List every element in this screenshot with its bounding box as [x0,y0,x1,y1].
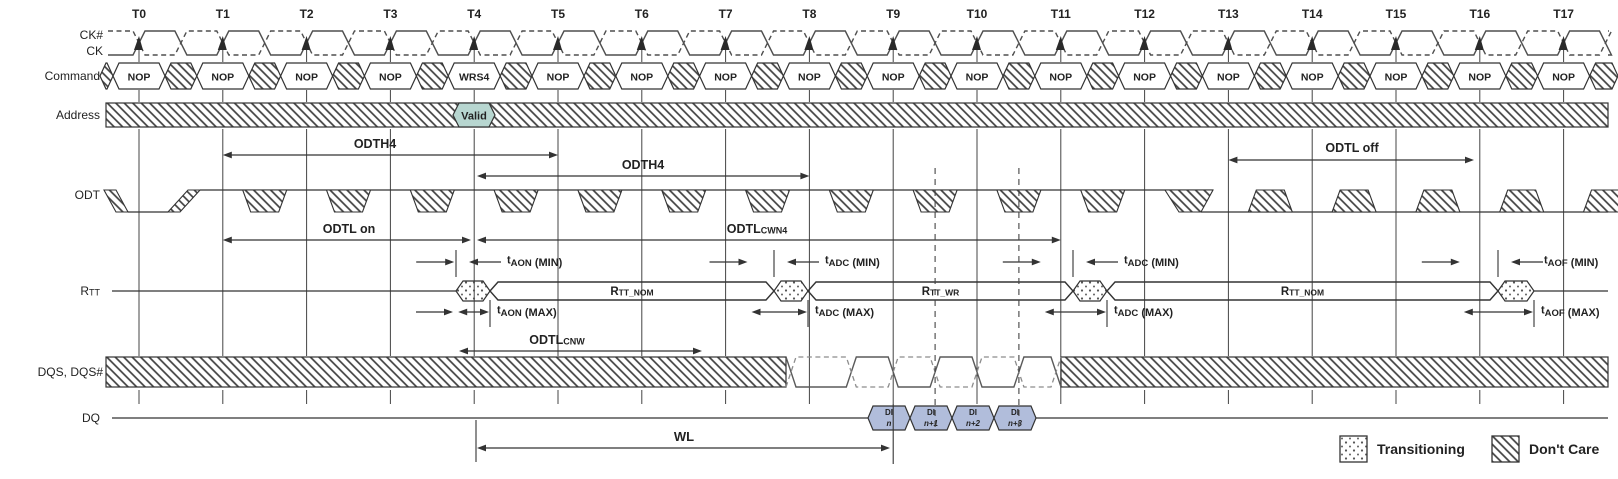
command-cell-label: NOP [882,72,905,84]
rtt-state-label: RTT_NOM [610,286,653,298]
tick-label: T4 [467,7,481,21]
rtt-transitioning-cell [456,281,490,301]
odtl-on-label: ODTL on [323,222,376,236]
dq-data-label: DI [885,408,893,417]
command-cell-label: NOP [1468,72,1491,84]
tick-label: T6 [635,7,649,21]
tick-label: T5 [551,7,565,21]
row-label-ck: CK [86,44,103,58]
dq-data-label: DI [927,408,935,417]
command-cell-label: NOP [1133,72,1156,84]
tick-label: T1 [216,7,230,21]
tick-label: T10 [967,7,988,21]
dq-data-label: n+3 [1008,419,1023,428]
command-cell-label: NOP [128,72,151,84]
command-dontcare-cell [1171,63,1203,89]
rtt-transitioning-cell [1073,281,1107,301]
tick-label: T7 [719,7,733,21]
dqs-dontcare-band [106,357,786,387]
command-cell-label: NOP [1552,72,1575,84]
timing-diagram-figure: T0T1T2T3T4T5T6T7T8T9T10T11T12T13T14T15T1… [0,0,1618,479]
odt-dontcare-piece [1248,190,1292,212]
tick-label: T9 [886,7,900,21]
dqs-dontcare-band [1061,357,1608,387]
tick-label: T17 [1553,7,1574,21]
odt-dontcare-piece [327,190,371,212]
odth4-label: ODTH4 [622,158,664,172]
timing-svg: T0T1T2T3T4T5T6T7T8T9T10T11T12T13T14T15T1… [0,0,1618,479]
command-cell-label: WRS4 [459,72,489,84]
dq-data-label: DI [969,408,977,417]
rtt-transitioning-cell [774,281,808,301]
command-dontcare-cell [249,63,281,89]
legend-transitioning-label: Transitioning [1377,441,1465,457]
odt-dontcare-piece [1081,190,1125,212]
command-cell-label: NOP [295,72,318,84]
odtl-off-label: ODTL off [1325,141,1379,155]
odt-dontcare-piece [746,190,790,212]
address-dontcare-band [106,103,1608,127]
row-label-dqs: DQS, DQS# [38,365,104,379]
row-label-dq: DQ [82,411,100,425]
tick-label: T11 [1051,7,1071,21]
command-cell-label: NOP [966,72,989,84]
legend-transitioning-swatch [1340,436,1367,462]
command-cell-label: NOP [714,72,737,84]
dq-data-label: DI [1011,408,1019,417]
odt-dontcare-piece [1416,190,1460,212]
wl-label: WL [674,429,694,444]
tick-label: T0 [132,7,146,21]
dq-data-label: n+1 [924,419,939,428]
odt-dontcare-piece [1332,190,1376,212]
odt-dontcare-piece [1500,190,1544,212]
row-label-command: Command [45,69,100,83]
command-dontcare-cell [668,63,700,89]
tick-label: T3 [383,7,397,21]
command-dontcare-cell [500,63,532,89]
rtt-transitioning-cell [1498,281,1534,301]
command-cell-label: NOP [630,72,653,84]
row-label-odt: ODT [75,188,101,202]
command-cell-label: NOP [798,72,821,84]
command-dontcare-cell [584,63,616,89]
row-label-ck-n: CK# [80,28,104,42]
tick-label: T13 [1218,7,1239,21]
rtt-state-label: RTT_WR [922,286,960,298]
command-cell-label: NOP [1049,72,1072,84]
command-dontcare-cell [835,63,867,89]
command-cell-label: NOP [547,72,570,84]
command-dontcare-cell [919,63,951,89]
command-dontcare-cell [1254,63,1286,89]
address-valid-label: Valid [461,111,487,123]
command-dontcare-cell [1087,63,1119,89]
command-dontcare-cell [1338,63,1370,89]
odt-dontcare-piece [829,190,873,212]
odt-dontcare-piece [494,190,538,212]
command-dontcare-cell [1422,63,1454,89]
command-dontcare-cell [416,63,448,89]
odt-dontcare-piece [410,190,454,212]
tick-label: T2 [300,7,314,21]
tick-label: T8 [802,7,816,21]
tick-label: T12 [1134,7,1155,21]
command-cell-label: NOP [1385,72,1408,84]
tick-label: T16 [1469,7,1490,21]
dq-data-label: n+2 [966,419,981,428]
command-dontcare-cell [333,63,365,89]
command-cell-label: NOP [1217,72,1240,84]
command-dontcare-cell [1506,63,1538,89]
odt-dontcare-piece [578,190,622,212]
command-dontcare-cell [1003,63,1035,89]
command-cell-label: NOP [1301,72,1324,84]
command-cell-label: NOP [211,72,234,84]
command-dontcare-cell [1590,63,1618,89]
command-dontcare-cell [165,63,197,89]
command-dontcare-cell [752,63,784,89]
tick-label: T15 [1386,7,1407,21]
dq-data-label: n [887,419,892,428]
legend-dont-care-label: Don't Care [1529,441,1599,457]
odt-dontcare-piece [243,190,287,212]
tick-label: T14 [1302,7,1323,21]
address-row: AddressValid [56,103,1608,127]
rtt-state-label: RTT_NOM [1281,286,1324,298]
command-cell-label: NOP [379,72,402,84]
legend-dont-care-swatch [1492,436,1519,462]
odth4-label: ODTH4 [354,137,396,151]
row-label-address: Address [56,108,100,122]
odt-dontcare-piece [662,190,706,212]
